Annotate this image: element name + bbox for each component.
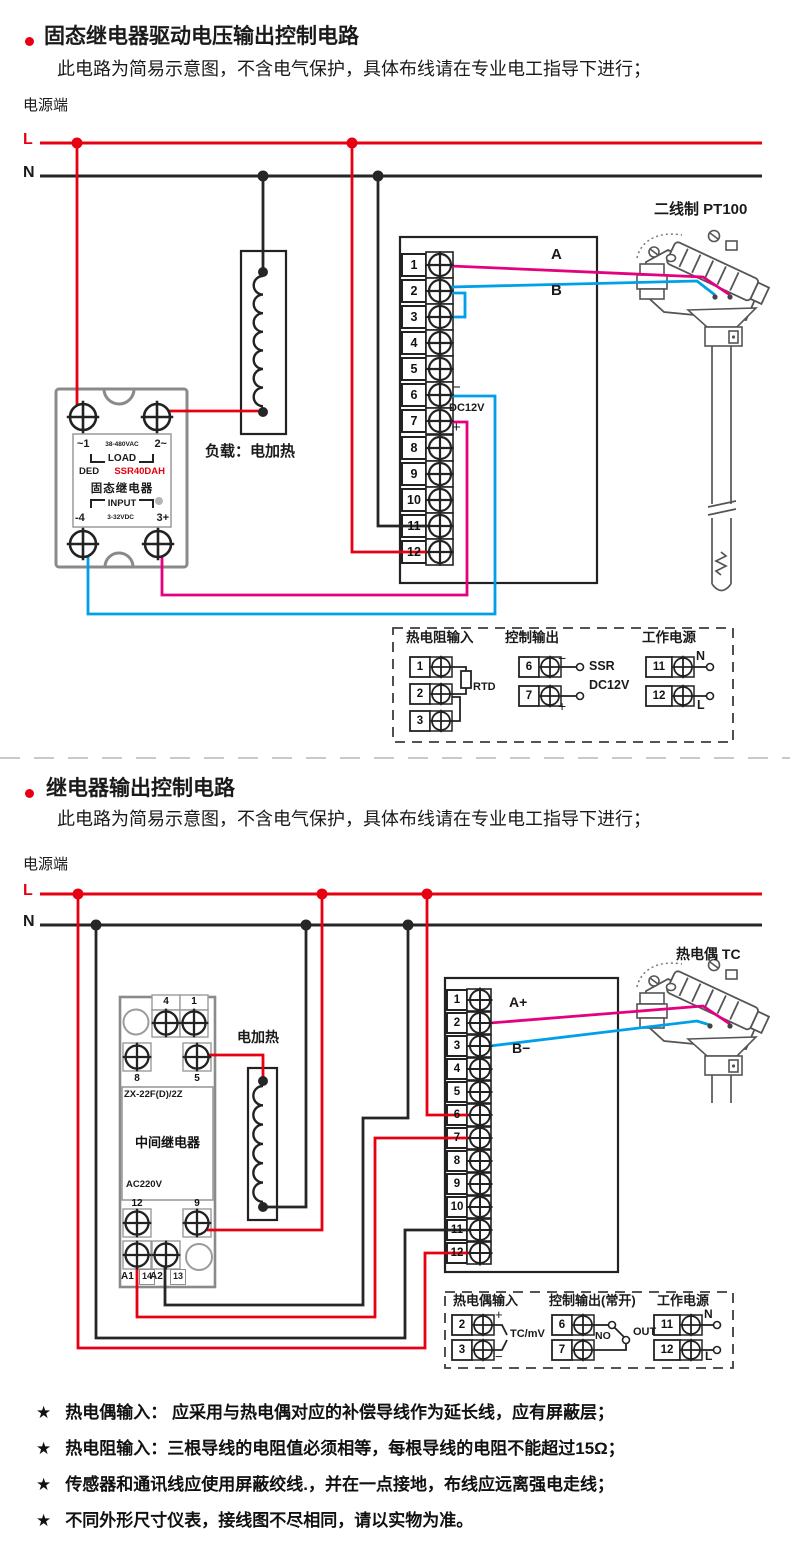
terminal-number: 4: [402, 332, 426, 354]
relay-terminal-13: 13: [170, 1269, 186, 1285]
star-icon: ★: [36, 1403, 51, 1422]
panel-terminal: 7: [552, 1340, 572, 1360]
ssr-label-area: ~138-480VAC2~ LOAD DEDSSR40DAH 固态继电器 INP…: [73, 435, 171, 527]
ssr-vac: 38-480VAC: [105, 441, 138, 448]
terminal-number: 12: [402, 541, 426, 563]
dc12v-label: DC12V: [449, 402, 484, 415]
ssr-terminal1: ~1: [77, 438, 90, 450]
panel-terminal: 2: [452, 1315, 472, 1335]
ssr-brand: DED: [79, 466, 99, 477]
relay-terminal: 1: [180, 996, 208, 1007]
terminal-number: 3: [447, 1036, 467, 1056]
panel1-minus: −: [558, 650, 566, 666]
wire-label-A: A: [551, 246, 562, 263]
terminal-number: 1: [447, 990, 467, 1010]
dc12v-out-label: DC12V: [589, 678, 629, 692]
ssr-terminal2: 2~: [154, 438, 167, 450]
terminal-number: 3: [402, 306, 426, 328]
ssr-load-label: LOAD: [108, 453, 136, 464]
terminal-number: 1: [402, 254, 426, 276]
bullet-icon: [25, 37, 34, 46]
line-L1-label: L: [23, 131, 33, 149]
relay-terminal: 12: [123, 1198, 151, 1209]
panel-terminal: 1: [410, 657, 430, 677]
terminal-number: 11: [402, 515, 426, 537]
panel-terminal: 3: [410, 711, 430, 731]
footnote-3: ★传感器和通讯线应使用屏蔽绞线.，并在一点接地，布线应远离强电走线；: [36, 1470, 614, 1495]
terminal-number: 7: [402, 410, 426, 432]
panel2-plus: +: [495, 1308, 503, 1323]
panel1-pwr-title: 工作电源: [642, 630, 696, 646]
bracket: [139, 454, 154, 463]
footnote-4: ★不同外形尺寸仪表，接线图不尽相同，请以实物为准。: [36, 1506, 473, 1531]
panel2-minus: −: [495, 1350, 503, 1365]
bracket: [90, 454, 105, 463]
panel-terminal: 6: [552, 1315, 572, 1335]
panel-terminal: 11: [646, 657, 672, 677]
ssr-input-label: INPUT: [108, 498, 137, 509]
relay-voltage: AC220V: [126, 1180, 162, 1191]
load-label: 负载：电加热: [205, 443, 295, 460]
dc-minus: −: [452, 379, 461, 396]
terminal-number: 9: [402, 463, 426, 485]
footnote-text: 不同外形尺寸仪表，接线图不尽相同，请以实物为准。: [65, 1511, 473, 1530]
line-N1-label: N: [23, 164, 35, 182]
star-icon: ★: [36, 1475, 51, 1494]
terminal-number: 8: [402, 437, 426, 459]
power-side-label-1: 电源端: [23, 97, 68, 114]
line-L2-label: L: [23, 882, 33, 900]
panel2-out-title: 控制输出(常开): [549, 1294, 636, 1309]
bullet-icon: [25, 789, 34, 798]
terminal-number: 11: [447, 1220, 467, 1240]
panel1-n: N: [696, 649, 705, 663]
footnote-text: 热电阻输入：三根导线的电阻值必须相等，每根导线的电阻不能超过15Ω；: [65, 1439, 625, 1458]
tc-label: 热电偶 TC: [676, 946, 741, 962]
load-heater-drawing: [241, 251, 286, 434]
terminal-number: 6: [402, 384, 426, 406]
bracket: [90, 499, 105, 508]
wire-label-Bminus: B−: [512, 1040, 530, 1056]
line-N2-label: N: [23, 913, 35, 931]
panel-terminal: 11: [654, 1315, 680, 1335]
terminal-number: 2: [447, 1013, 467, 1033]
ssr-model: SSR40DAH: [114, 466, 165, 477]
relay-model: ZX-22F(D)/2Z: [124, 1090, 183, 1101]
dc-plus: +: [452, 419, 461, 436]
ssr-out-label: SSR: [589, 659, 615, 673]
panel1-l: L: [697, 698, 705, 712]
ssr-led-indicator: [155, 497, 163, 505]
section1-title: 固态继电器驱动电压输出控制电路: [44, 25, 359, 49]
no-label: NO: [595, 1330, 611, 1342]
relay-terminal-a2: A2: [150, 1271, 163, 1283]
section2-subtitle: 此电路为简易示意图，不含电气保护，具体布线请在专业电工指导下进行；: [57, 809, 651, 830]
wiring-diagram-page: 固态继电器驱动电压输出控制电路 此电路为简易示意图，不含电气保护，具体布线请在专…: [0, 0, 790, 1564]
footnote-text: 传感器和通讯线应使用屏蔽绞线.，并在一点接地，布线应远离强电走线；: [65, 1475, 614, 1494]
out-label: OUT: [633, 1326, 656, 1339]
footnote-2: ★热电阻输入：三根导线的电阻值必须相等，每根导线的电阻不能超过15Ω；: [36, 1434, 625, 1459]
relay-terminal: 8: [123, 1073, 151, 1084]
pt100-label: 二线制 PT100: [654, 201, 747, 218]
panel2-l: L: [705, 1350, 712, 1364]
panel2-n: N: [704, 1308, 713, 1322]
terminal-number: 12: [447, 1243, 467, 1263]
terminal-number: 2: [402, 280, 426, 302]
star-icon: ★: [36, 1439, 51, 1458]
tcmv-label: TC/mV: [510, 1328, 545, 1341]
panel2-tc-title: 热电偶输入: [453, 1294, 518, 1309]
ssr-terminal4: -4: [75, 512, 85, 524]
rtd-label: RTD: [473, 681, 496, 694]
terminal-number: 9: [447, 1174, 467, 1194]
relay-terminal: 5: [183, 1073, 211, 1084]
terminal-number: 10: [402, 489, 426, 511]
panel-terminal: 12: [646, 686, 672, 706]
panel1-out-title: 控制输出: [505, 630, 559, 646]
panel-terminal: 6: [519, 657, 539, 677]
panel1-rtd-title: 热电阻输入: [406, 630, 474, 646]
panel-terminal: 3: [452, 1340, 472, 1360]
heater-drawing: [248, 1068, 277, 1220]
terminal-number: 5: [447, 1082, 467, 1102]
footnote-1: ★热电偶输入： 应采用与热电偶对应的补偿导线作为延长线，应有屏蔽层；: [36, 1398, 614, 1423]
relay-name: 中间继电器: [122, 1132, 213, 1151]
terminal-number: 6: [447, 1105, 467, 1125]
section2-title: 继电器输出控制电路: [46, 777, 235, 801]
relay-terminal: 9: [183, 1198, 211, 1209]
terminal-number: 7: [447, 1128, 467, 1148]
panel-terminal: 7: [519, 686, 539, 706]
section1-subtitle: 此电路为简易示意图，不含电气保护，具体布线请在专业电工指导下进行；: [57, 59, 651, 80]
ssr-vdc: 3-32VDC: [107, 514, 134, 521]
terminal-number: 4: [447, 1059, 467, 1079]
panel2-pwr-title: 工作电源: [657, 1294, 709, 1309]
panel-terminal: 2: [410, 684, 430, 704]
relay-terminal: 4: [152, 996, 180, 1007]
terminal-number: 10: [447, 1197, 467, 1217]
terminal-number: 5: [402, 358, 426, 380]
relay-terminal-a1: A1: [121, 1271, 134, 1283]
ssr-name: 固态继电器: [91, 480, 154, 496]
wire-label-B: B: [551, 282, 562, 299]
footnote-text: 热电偶输入： 应采用与热电偶对应的补偿导线作为延长线，应有屏蔽层；: [65, 1403, 614, 1422]
power-side-label-2: 电源端: [23, 856, 68, 873]
panel1-plus: +: [558, 698, 566, 714]
terminal-number: 8: [447, 1151, 467, 1171]
panel-terminal: 12: [654, 1340, 680, 1360]
wire-label-Aplus: A+: [509, 994, 527, 1010]
ssr-terminal3: 3+: [156, 512, 169, 524]
bracket: [139, 499, 154, 508]
star-icon: ★: [36, 1511, 51, 1530]
heater-label: 电加热: [237, 1029, 279, 1045]
tc-probe-drawing: [637, 960, 770, 1104]
